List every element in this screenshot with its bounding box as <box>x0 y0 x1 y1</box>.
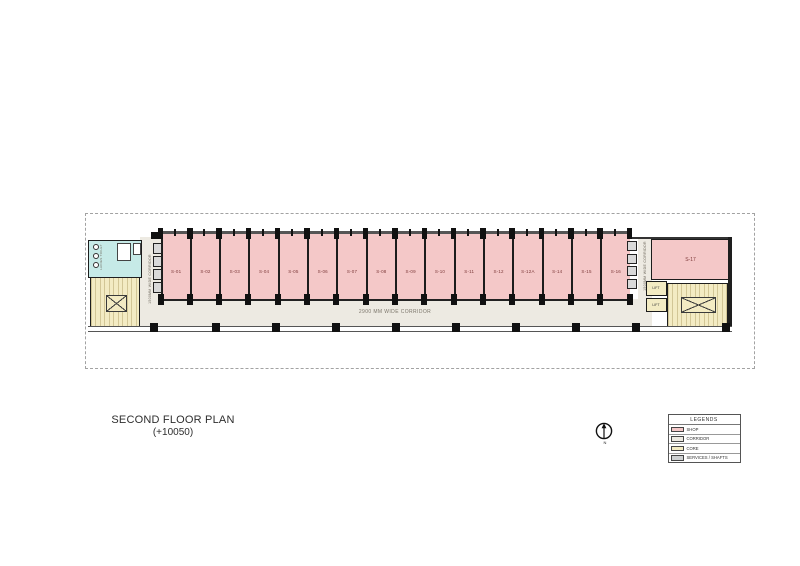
column <box>452 323 460 332</box>
shop-unit: S-09 <box>397 234 426 300</box>
column <box>392 294 398 305</box>
column <box>539 294 545 305</box>
shop-unit: S-03 <box>221 234 250 300</box>
shop-unit-label: S-12A <box>521 269 535 274</box>
column <box>568 294 574 305</box>
floor-plan-canvas: 1500MM WIDE CORRIDOR 1500MM WIDE CORRIDO… <box>0 0 800 566</box>
column <box>422 228 428 239</box>
toilet-partition <box>133 243 141 255</box>
column <box>350 229 352 236</box>
right-staircase-core <box>681 297 716 313</box>
column <box>304 228 310 239</box>
column <box>158 294 164 305</box>
shop-unit-label: S-10 <box>435 269 445 274</box>
shop-unit: S-05 <box>280 234 309 300</box>
lift-label: LIFT <box>652 286 659 290</box>
legend-label: CORRIDOR <box>687 436 710 441</box>
legend-label: CORE <box>687 446 699 451</box>
column <box>497 229 499 236</box>
column <box>526 229 528 236</box>
shop-unit-label: S-07 <box>347 269 357 274</box>
column <box>304 294 310 305</box>
legend-box: LEGENDS SHOP CORRIDOR CORE SERVICES / SH… <box>668 414 741 463</box>
shop-band: S-01S-02S-03S-04S-05S-06S-07S-08S-09S-10… <box>161 234 630 300</box>
column <box>467 229 469 236</box>
service-shaft <box>627 254 637 264</box>
column <box>597 228 603 239</box>
legend-swatch-core <box>671 446 684 452</box>
shop-unit-label: S-06 <box>318 269 328 274</box>
column <box>216 294 222 305</box>
column <box>262 229 264 236</box>
shop-unit-label: S-03 <box>230 269 240 274</box>
column <box>187 294 193 305</box>
shop-unit: S-14 <box>544 234 573 300</box>
shop-unit-label: S-09 <box>406 269 416 274</box>
column <box>451 228 457 239</box>
shop-unit: S-12A <box>514 234 543 300</box>
shop-unit-label: S-04 <box>259 269 269 274</box>
column <box>334 228 340 239</box>
lift-upper: LIFT <box>646 281 667 296</box>
shop-unit-label: S-12 <box>493 269 503 274</box>
service-shaft <box>153 269 162 280</box>
legend-row-shop: SHOP <box>669 425 740 435</box>
column <box>568 228 574 239</box>
column <box>216 228 222 239</box>
shop-unit: S-02 <box>192 234 221 300</box>
legend-label: SHOP <box>687 427 699 432</box>
legend-label: SERVICES / SHAFTS <box>687 455 728 460</box>
shop-unit: S-07 <box>338 234 367 300</box>
column <box>409 229 411 236</box>
shop-unit-label: S-17 <box>685 257 696 263</box>
title-block: SECOND FLOOR PLAN (+10050) <box>103 414 243 438</box>
shop-unit-label: S-15 <box>581 269 591 274</box>
column <box>150 323 158 332</box>
north-arrow-icon <box>593 421 615 441</box>
column <box>187 228 193 239</box>
shop-unit-label: S-02 <box>200 269 210 274</box>
toilet-label: LADIES TOILET <box>99 237 103 277</box>
shop-unit-label: S-05 <box>288 269 298 274</box>
column <box>614 229 616 236</box>
service-shaft <box>153 243 162 254</box>
shop-unit-label: S-11 <box>464 269 474 274</box>
column <box>509 294 515 305</box>
plan-title: SECOND FLOOR PLAN <box>103 414 243 426</box>
left-staircase-core <box>106 295 127 312</box>
column <box>392 323 400 332</box>
column <box>151 232 160 239</box>
left-corridor-label: 1500MM WIDE CORRIDOR <box>148 239 152 319</box>
shop-unit: S-08 <box>368 234 397 300</box>
column <box>245 294 251 305</box>
service-shaft <box>153 256 162 267</box>
column <box>291 229 293 236</box>
column <box>332 323 340 332</box>
legend-header: LEGENDS <box>669 415 740 425</box>
service-shaft <box>627 241 637 251</box>
service-shaft <box>627 266 637 276</box>
column <box>632 323 640 332</box>
lift-lower: LIFT <box>646 298 667 313</box>
service-shaft <box>627 279 637 289</box>
column <box>572 323 580 332</box>
column <box>480 294 486 305</box>
column <box>363 294 369 305</box>
shop-unit-label: S-14 <box>552 269 562 274</box>
legend-swatch-shop <box>671 427 684 433</box>
legend-row-core: CORE <box>669 444 740 454</box>
shop-unit: S-16 <box>602 234 629 300</box>
column <box>539 228 545 239</box>
column <box>246 228 252 239</box>
shop-unit: S-12 <box>485 234 514 300</box>
service-shaft <box>153 282 162 293</box>
column <box>363 228 369 239</box>
column <box>275 228 281 239</box>
column <box>585 229 587 236</box>
north-letter: N <box>600 440 610 445</box>
column <box>512 323 520 332</box>
column <box>203 229 205 236</box>
shop-unit: S-01 <box>163 234 192 300</box>
column <box>555 229 557 236</box>
main-corridor-label: 2900 MM WIDE CORRIDOR <box>295 309 495 315</box>
column <box>321 229 323 236</box>
services-toilet-block <box>88 240 142 278</box>
shop-unit-label: S-16 <box>611 269 621 274</box>
column <box>333 294 339 305</box>
column <box>379 229 381 236</box>
shop-unit: S-04 <box>250 234 279 300</box>
column <box>174 229 176 236</box>
column <box>722 323 730 332</box>
legend-row-services: SERVICES / SHAFTS <box>669 454 740 463</box>
shop-unit: S-11 <box>456 234 485 300</box>
shop-unit: S-10 <box>426 234 455 300</box>
column <box>421 294 427 305</box>
column <box>272 323 280 332</box>
column <box>627 294 633 305</box>
column <box>597 294 603 305</box>
column <box>275 294 281 305</box>
column <box>627 228 633 239</box>
column <box>438 229 440 236</box>
column <box>451 294 457 305</box>
column <box>233 229 235 236</box>
column <box>392 228 398 239</box>
right-exterior-wall <box>728 237 732 330</box>
shop-unit: S-06 <box>309 234 338 300</box>
column <box>480 228 486 239</box>
column <box>212 323 220 332</box>
legend-swatch-corridor <box>671 436 684 442</box>
shop-unit-label: S-08 <box>376 269 386 274</box>
legend-row-corridor: CORRIDOR <box>669 435 740 445</box>
shop-unit-end: S-17 <box>651 239 730 280</box>
legend-swatch-services <box>671 455 684 461</box>
shop-unit: S-15 <box>573 234 602 300</box>
toilet-partition <box>117 243 131 261</box>
plan-level: (+10050) <box>103 427 243 438</box>
column <box>509 228 515 239</box>
lift-label: LIFT <box>652 303 659 307</box>
shop-unit-label: S-01 <box>171 269 181 274</box>
